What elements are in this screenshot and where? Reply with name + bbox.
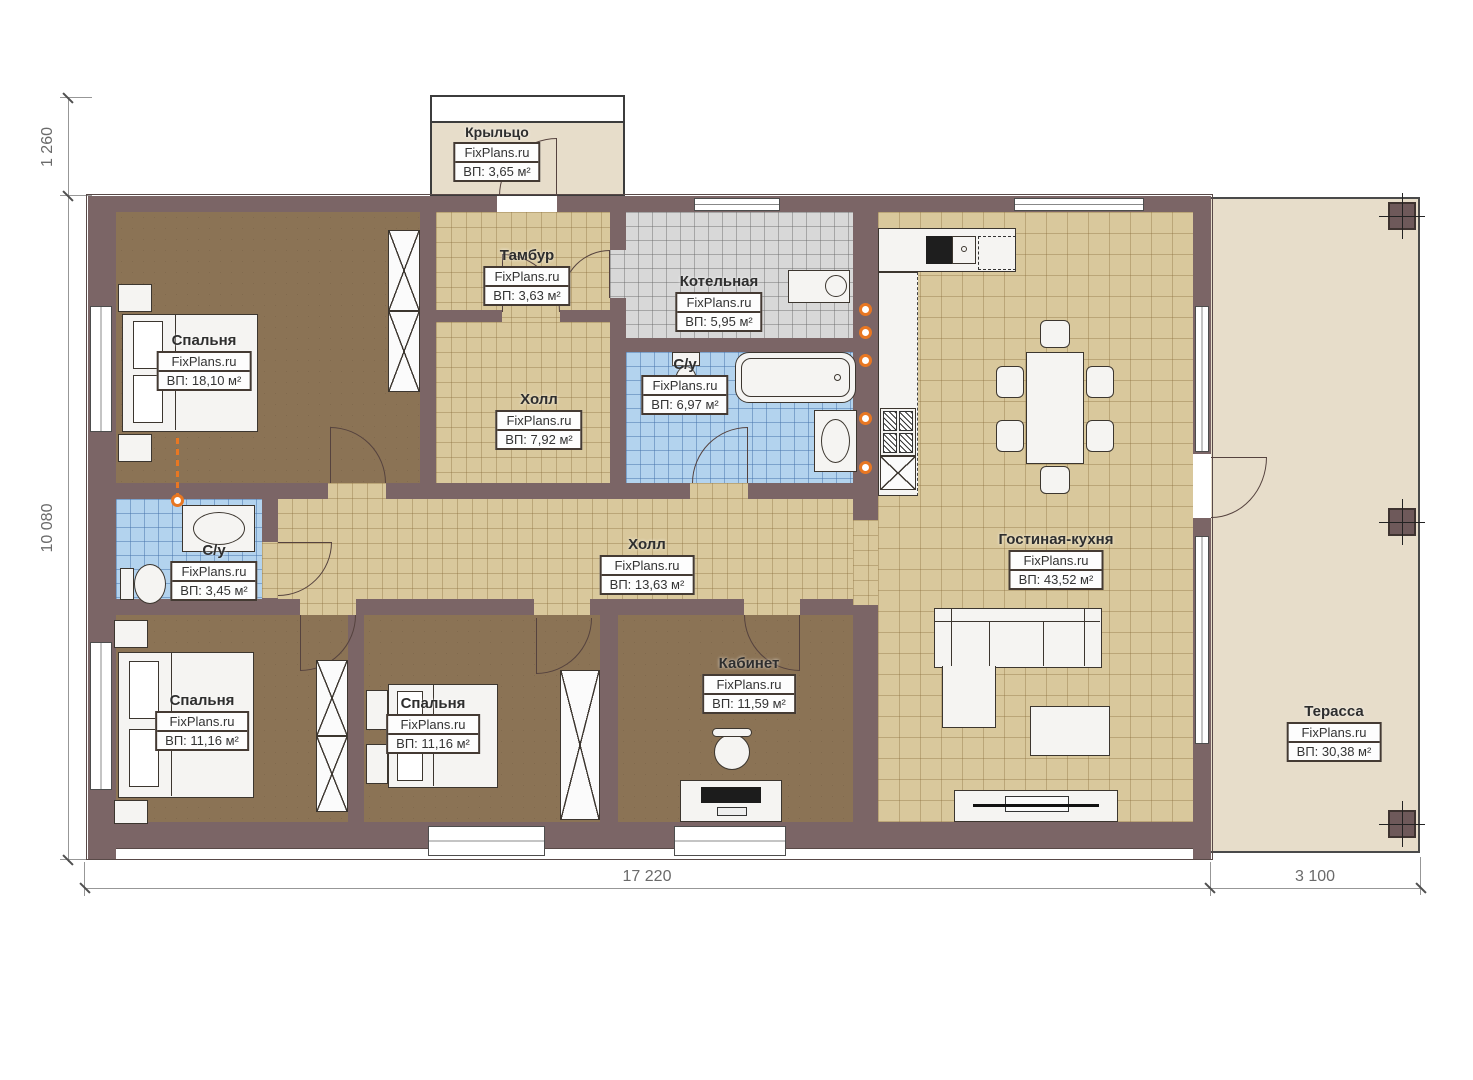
- dining-table: [1026, 352, 1084, 464]
- room-name: С/у: [170, 542, 257, 559]
- room-label-bath-left: С/у FixPlans.ruВП: 3,45 м²: [170, 542, 257, 601]
- wall-bath-left: [262, 598, 278, 615]
- oven: [880, 456, 916, 490]
- wall-boiler-bath: [626, 338, 853, 352]
- dish-rack: [926, 236, 952, 264]
- heating-riser-icon: [859, 303, 872, 316]
- brand-watermark: FixPlans.ru: [704, 676, 794, 693]
- wall-right: [1193, 196, 1211, 860]
- brand-watermark: FixPlans.ru: [1289, 724, 1380, 741]
- chair: [996, 420, 1024, 452]
- wardrobe: [560, 670, 600, 820]
- chair: [996, 366, 1024, 398]
- wall-bedroom1-right: [420, 212, 436, 499]
- window: [428, 826, 545, 856]
- heating-riser-icon: [171, 494, 184, 507]
- window: [1014, 198, 1144, 211]
- dimension-text-house-depth: 10 080: [39, 493, 59, 563]
- window: [1195, 306, 1209, 452]
- door-opening-entry: [497, 196, 557, 212]
- room-label-porch: Крыльцо FixPlans.ruВП: 3,65 м²: [453, 124, 540, 182]
- stove: [880, 408, 916, 456]
- office-chair-back: [712, 728, 752, 737]
- nightstand: [118, 284, 152, 312]
- room-label-office: Кабинет FixPlans.ruВП: 11,59 м²: [702, 655, 796, 714]
- room-label-living-kitchen: Гостиная-кухня FixPlans.ruВП: 43,52 м²: [999, 531, 1114, 590]
- brand-watermark: FixPlans.ru: [172, 563, 255, 580]
- room-area: ВП: 3,63 м²: [485, 285, 568, 304]
- nightstand: [366, 690, 388, 730]
- sofa: [934, 608, 1102, 668]
- heating-riser-icon: [859, 412, 872, 425]
- wall-h2: [800, 599, 853, 615]
- brand-watermark: FixPlans.ru: [643, 377, 726, 394]
- wall-tambour-boiler: [610, 212, 626, 250]
- heating-riser-icon: [859, 354, 872, 367]
- sofa-chaise: [942, 666, 996, 728]
- room-name: С/у: [641, 356, 728, 373]
- wardrobe: [316, 660, 348, 736]
- extension-line: [84, 862, 85, 896]
- heating-riser-icon: [859, 461, 872, 474]
- room-name: Кабинет: [702, 655, 796, 672]
- heating-riser-icon: [859, 326, 872, 339]
- room-label-bedroom3: Спальня FixPlans.ruВП: 11,16 м²: [386, 695, 480, 754]
- room-area: ВП: 6,97 м²: [643, 394, 726, 413]
- brand-watermark: FixPlans.ru: [388, 716, 478, 733]
- radiator-riser: [176, 438, 179, 496]
- floor-plan: 1 260 10 080 17 220 3 100: [0, 0, 1473, 1080]
- door-opening-terrace: [1193, 454, 1211, 518]
- room-name: Котельная: [675, 273, 762, 290]
- brand-watermark: FixPlans.ru: [602, 557, 693, 574]
- room-label-boiler: Котельная FixPlans.ruВП: 5,95 м²: [675, 273, 762, 332]
- chair: [1040, 320, 1070, 348]
- room-name: Холл: [495, 391, 582, 408]
- chair: [1086, 366, 1114, 398]
- dimension-line-left: [68, 98, 69, 862]
- wall-tambour-boiler: [610, 298, 626, 499]
- window-terrace-slider: [1195, 536, 1209, 744]
- terrace-column: [1388, 810, 1416, 838]
- room-area: ВП: 11,16 м²: [157, 730, 247, 749]
- dimension-line-bottom: [85, 888, 1421, 889]
- room-area: ВП: 5,95 м²: [677, 311, 760, 330]
- brand-watermark: FixPlans.ru: [485, 268, 568, 285]
- wall-bedroom3-office: [600, 615, 618, 824]
- upper-cabinet-dashed: [978, 236, 1016, 270]
- nightstand: [114, 620, 148, 648]
- window: [90, 306, 112, 432]
- room-name: Спальня: [157, 332, 252, 349]
- nightstand: [366, 744, 388, 784]
- brand-watermark: FixPlans.ru: [157, 713, 247, 730]
- dimension-text-porch-depth: 1 260: [39, 112, 59, 182]
- room-area: ВП: 11,16 м²: [388, 733, 478, 752]
- dimension-text-terrace-width: 3 100: [1265, 868, 1365, 886]
- room-area: ВП: 11,59 м²: [704, 693, 794, 712]
- coffee-table: [1030, 706, 1110, 756]
- floor-hall-main: [262, 483, 853, 615]
- wall-bottom: [88, 822, 1211, 848]
- washing-machine: [788, 270, 850, 303]
- brand-watermark: FixPlans.ru: [159, 353, 250, 370]
- wall-h2: [356, 599, 534, 615]
- room-name: Терасса: [1287, 703, 1382, 720]
- room-label-tambour: Тамбур FixPlans.ruВП: 3,63 м²: [483, 247, 570, 306]
- brand-watermark: FixPlans.ru: [677, 294, 760, 311]
- office-chair: [714, 734, 750, 770]
- room-area: ВП: 18,10 м²: [159, 370, 250, 389]
- room-name: Холл: [600, 536, 695, 553]
- room-label-terrace: Терасса FixPlans.ruВП: 30,38 м²: [1287, 703, 1382, 762]
- desk: [680, 780, 782, 822]
- terrace-column: [1388, 202, 1416, 230]
- room-label-bedroom2: Спальня FixPlans.ruВП: 11,16 м²: [155, 692, 249, 751]
- chair: [1040, 466, 1070, 494]
- room-area: ВП: 3,45 м²: [172, 580, 255, 599]
- wall-h1: [116, 483, 328, 499]
- wardrobe: [388, 311, 420, 392]
- toilet: [120, 568, 134, 600]
- window: [694, 198, 780, 211]
- room-label-bedroom1: Спальня FixPlans.ruВП: 18,10 м²: [157, 332, 252, 391]
- room-name: Спальня: [155, 692, 249, 709]
- room-area: ВП: 7,92 м²: [497, 429, 580, 448]
- brand-watermark: FixPlans.ru: [455, 144, 538, 161]
- room-area: ВП: 30,38 м²: [1289, 741, 1380, 760]
- room-label-bath-upper: С/у FixPlans.ruВП: 6,97 м²: [641, 356, 728, 415]
- wall-tambour: [436, 310, 502, 322]
- wardrobe: [316, 736, 348, 812]
- window: [90, 642, 112, 790]
- terrace-column: [1388, 508, 1416, 536]
- dimension-text-house-width: 17 220: [597, 868, 697, 886]
- room-name: Гостиная-кухня: [999, 531, 1114, 548]
- brand-watermark: FixPlans.ru: [1011, 552, 1102, 569]
- room-name: Спальня: [386, 695, 480, 712]
- wall-tambour: [560, 310, 610, 322]
- wall-bottom-sill: [88, 848, 1211, 860]
- window: [674, 826, 786, 856]
- room-label-hall-main: Холл FixPlans.ruВП: 13,63 м²: [600, 536, 695, 595]
- toilet-bowl: [134, 564, 166, 604]
- room-name: Тамбур: [483, 247, 570, 264]
- wardrobe: [388, 230, 420, 311]
- wall-office-right: [853, 605, 878, 824]
- room-label-hall-upper: Холл FixPlans.ruВП: 7,92 м²: [495, 391, 582, 450]
- room-area: ВП: 3,65 м²: [455, 161, 538, 180]
- porch-steps: [432, 97, 623, 123]
- brand-watermark: FixPlans.ru: [497, 412, 580, 429]
- wall-h1: [748, 483, 853, 499]
- floor-hall-opening: [853, 520, 878, 605]
- wall-bedroom2-3: [348, 615, 364, 824]
- bathtub: [735, 352, 856, 403]
- wall-bath-left: [262, 499, 278, 542]
- chair: [1086, 420, 1114, 452]
- room-area: ВП: 13,63 м²: [602, 574, 693, 593]
- nightstand: [114, 800, 148, 824]
- sink: [814, 410, 857, 472]
- room-name: Крыльцо: [453, 124, 540, 140]
- kitchen-sink: [952, 236, 976, 264]
- room-area: ВП: 43,52 м²: [1011, 569, 1102, 588]
- wall-h2: [590, 599, 744, 615]
- nightstand: [118, 434, 152, 462]
- tv-stand: [954, 790, 1118, 822]
